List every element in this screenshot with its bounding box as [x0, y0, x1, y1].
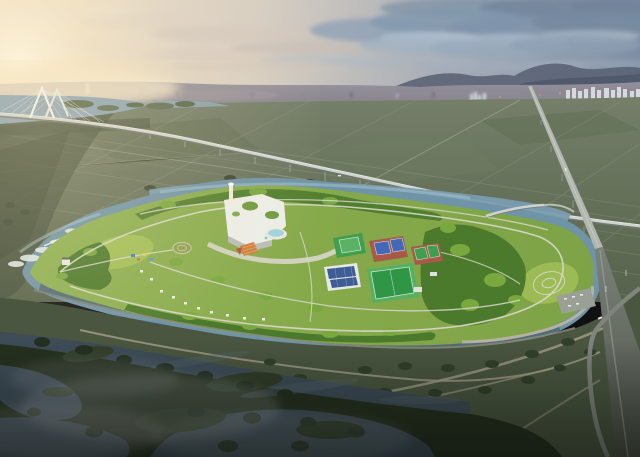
car	[338, 175, 341, 176]
soccer-field	[367, 263, 419, 303]
park-aerial-rendering	[0, 0, 640, 457]
service-building	[430, 272, 437, 276]
car	[565, 168, 567, 171]
bottom-shade	[0, 340, 640, 457]
rendering-canvas	[0, 0, 640, 457]
solar-roof-gym	[324, 263, 361, 291]
service-building	[414, 287, 422, 292]
sunset-cast	[0, 60, 320, 320]
